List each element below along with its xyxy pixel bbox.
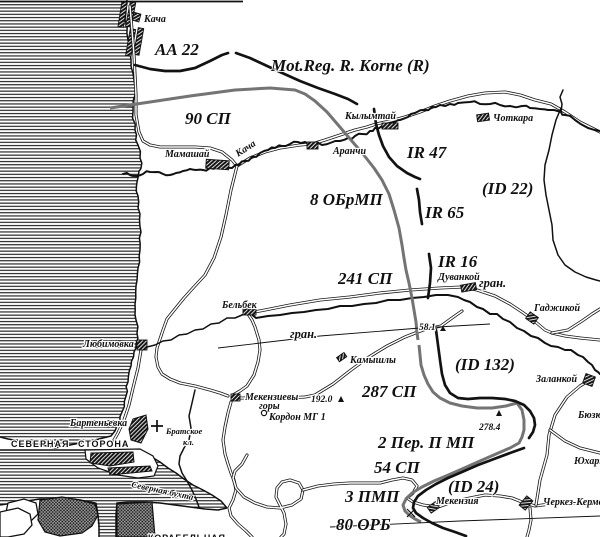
svg-text:Братское: Братское — [165, 426, 203, 436]
svg-text:Чоткара: Чоткара — [493, 113, 533, 124]
svg-text:IR 65: IR 65 — [424, 203, 465, 222]
svg-text:2 Пер. П МП: 2 Пер. П МП — [377, 433, 475, 452]
svg-text:80 ОРБ: 80 ОРБ — [336, 515, 391, 534]
svg-text:Камышлы: Камышлы — [349, 355, 396, 366]
svg-text:8 ОБрМП: 8 ОБрМП — [310, 190, 383, 209]
svg-text:АА 22: АА 22 — [154, 40, 199, 59]
svg-text:(ID 132): (ID 132) — [455, 355, 515, 374]
svg-text:90 СП: 90 СП — [185, 109, 232, 128]
svg-text:Дуванкой: Дуванкой — [437, 272, 480, 283]
svg-text:278.4: 278.4 — [478, 423, 501, 433]
svg-text:Бельбек: Бельбек — [221, 300, 258, 311]
svg-text:Бартеньевка: Бартеньевка — [69, 418, 127, 429]
svg-text:КОРАБЕЛЬНАЯ: КОРАБЕЛЬНАЯ — [148, 533, 226, 537]
svg-text:Черкез-Керме: Черкез-Керме — [543, 497, 600, 508]
svg-text:Мамашай: Мамашай — [164, 149, 210, 160]
svg-text:(ID 22): (ID 22) — [482, 179, 533, 198]
svg-text:(ID 24): (ID 24) — [448, 477, 499, 496]
svg-text:IR 47: IR 47 — [406, 143, 448, 162]
svg-text:192.0: 192.0 — [311, 395, 333, 405]
svg-text:54 СП: 54 СП — [374, 458, 421, 477]
svg-text:Заланкой: Заланкой — [535, 374, 577, 385]
svg-text:СТОРОНА: СТОРОНА — [78, 439, 129, 449]
svg-text:Гаджикой: Гаджикой — [533, 303, 581, 314]
svg-text:Кордон МГ 1: Кордон МГ 1 — [268, 412, 326, 423]
svg-text:гран.: гран. — [290, 327, 317, 341]
svg-text:Аранчи: Аранчи — [332, 146, 366, 157]
svg-text:3 ПМП: 3 ПМП — [344, 487, 400, 506]
svg-text:Юхары: Юхары — [573, 456, 600, 467]
svg-text:Mot.Reg. R. Korne (R): Mot.Reg. R. Korne (R) — [270, 56, 430, 75]
svg-text:Кача: Кача — [143, 14, 166, 25]
svg-text:Любимовка: Любимовка — [82, 339, 134, 350]
svg-text:Мекензия: Мекензия — [435, 496, 479, 507]
svg-text:241 СП: 241 СП — [337, 269, 393, 288]
svg-text:СЕВЕРНАЯ: СЕВЕРНАЯ — [11, 439, 69, 449]
svg-text:горы: горы — [259, 401, 280, 412]
svg-text:287 СП: 287 СП — [361, 382, 417, 401]
svg-text:гран.: гран. — [479, 276, 506, 290]
svg-text:58.1: 58.1 — [419, 323, 436, 333]
svg-text:Кылымтай: Кылымтай — [344, 111, 396, 122]
svg-text:Бюзюл: Бюзюл — [577, 410, 600, 421]
svg-text:IR 16: IR 16 — [437, 252, 478, 271]
svg-text:кл.: кл. — [183, 437, 194, 447]
